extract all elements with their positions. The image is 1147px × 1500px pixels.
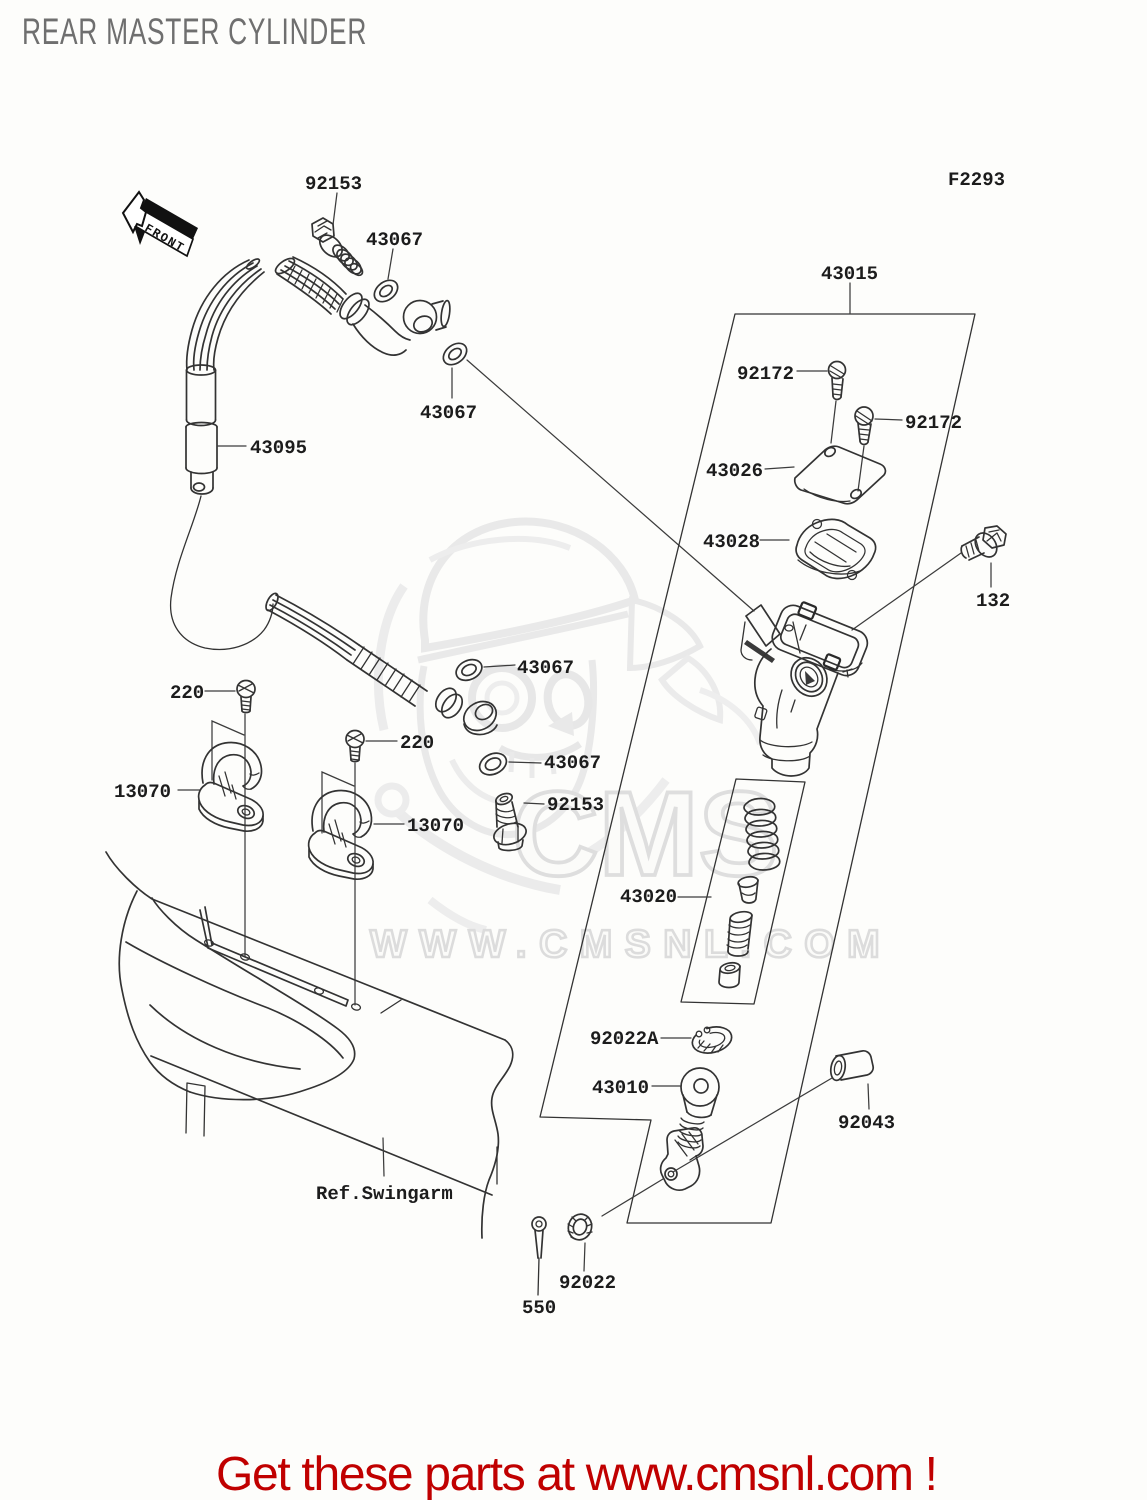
svg-text:REAR MASTER CYLINDER: REAR MASTER CYLINDER — [22, 11, 367, 52]
svg-text:43010: 43010 — [592, 1077, 649, 1099]
svg-text:220: 220 — [400, 732, 434, 754]
svg-text:43095: 43095 — [250, 437, 307, 459]
svg-text:220: 220 — [170, 682, 204, 704]
svg-text:43015: 43015 — [821, 263, 878, 285]
svg-text:92172: 92172 — [905, 412, 962, 434]
svg-text:Get these parts at www.cmsnl.c: Get these parts at www.cmsnl.com ! — [216, 1448, 938, 1500]
svg-text:13070: 13070 — [407, 815, 464, 837]
svg-text:92043: 92043 — [838, 1112, 895, 1134]
svg-text:92022A: 92022A — [590, 1028, 659, 1050]
svg-text:550: 550 — [522, 1297, 556, 1319]
svg-text:43026: 43026 — [706, 460, 763, 482]
svg-text:92153: 92153 — [305, 173, 362, 195]
svg-text:F2293: F2293 — [948, 169, 1005, 191]
svg-text:92022: 92022 — [559, 1272, 616, 1294]
svg-text:43067: 43067 — [420, 402, 477, 424]
svg-text:43067: 43067 — [517, 657, 574, 679]
svg-text:132: 132 — [976, 590, 1010, 612]
svg-text:43020: 43020 — [620, 886, 677, 908]
svg-text:43028: 43028 — [703, 531, 760, 553]
svg-text:43067: 43067 — [366, 229, 423, 251]
svg-text:13070: 13070 — [114, 781, 171, 803]
svg-text:43067: 43067 — [544, 752, 601, 774]
svg-text:Ref.Swingarm: Ref.Swingarm — [316, 1183, 453, 1205]
svg-text:92153: 92153 — [547, 794, 604, 816]
svg-text:WWW.CMSNL.COM: WWW.CMSNL.COM — [370, 923, 892, 966]
svg-text:92172: 92172 — [737, 363, 794, 385]
